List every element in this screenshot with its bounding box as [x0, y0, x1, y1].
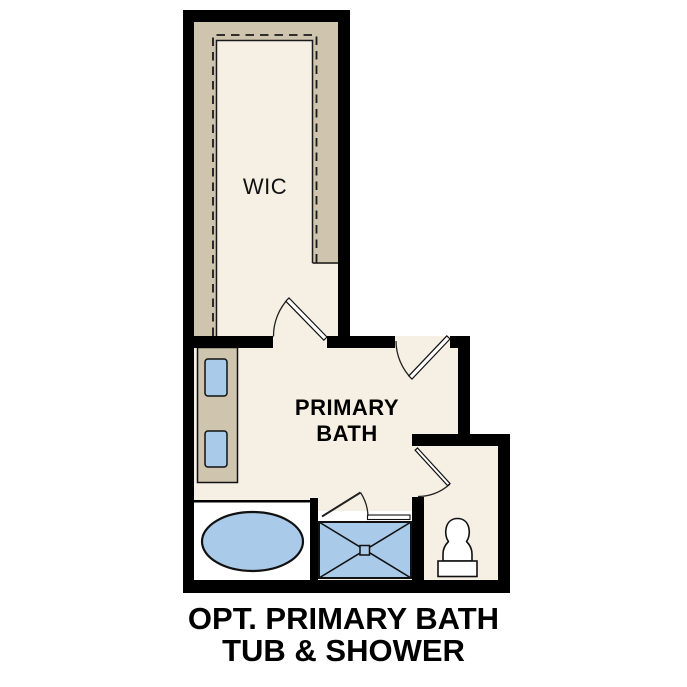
tub-basin-icon — [202, 512, 303, 571]
plan-caption: OPT. PRIMARY BATH TUB & SHOWER — [0, 603, 687, 666]
floor-plan-drawing — [0, 0, 687, 687]
plan-caption-line2: TUB & SHOWER — [0, 635, 687, 667]
wall-tub-shower-divider — [310, 498, 318, 582]
wall-wic-right — [338, 10, 350, 348]
wic-floor — [216, 40, 313, 336]
plan-caption-line1: OPT. PRIMARY BATH — [0, 603, 687, 635]
wall-bath-right — [458, 336, 470, 446]
toilet-tank-icon — [438, 561, 477, 577]
wall-top — [183, 10, 350, 22]
wall-wc-right — [498, 434, 510, 593]
shower-glass-panel — [368, 515, 411, 520]
shower-drain-icon — [360, 546, 370, 556]
tub-deck-edge-line — [194, 500, 310, 503]
vanity — [198, 348, 238, 483]
floor-plan-page: WIC PRIMARY BATH OPT. PRIMARY BATH TUB &… — [0, 0, 687, 687]
wall-bottom — [183, 580, 510, 593]
bathtub — [194, 503, 310, 581]
wic-door-opening — [273, 336, 327, 348]
wall-mid-center — [327, 336, 395, 348]
sink-icon — [205, 359, 227, 396]
wall-wc-left — [412, 497, 424, 593]
toilet-bowl-icon — [443, 519, 472, 562]
wic-floor-right-extension — [313, 264, 338, 336]
wall-left — [183, 10, 194, 593]
wic-room — [194, 22, 338, 336]
sink-icon — [205, 431, 227, 467]
wall-wc-top — [412, 434, 510, 446]
wall-mid-left — [183, 336, 273, 348]
